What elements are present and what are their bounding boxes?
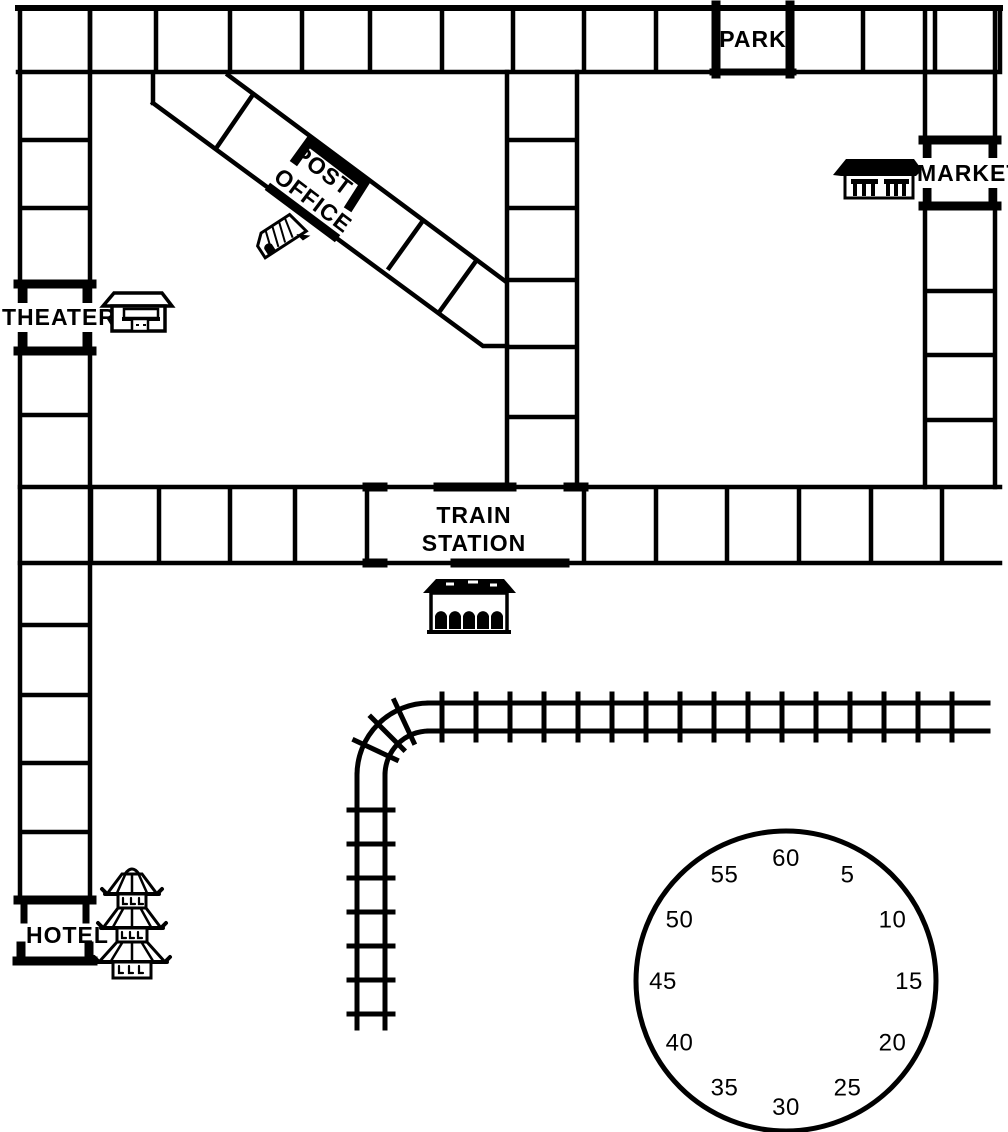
hotel-cell[interactable]: HOTEL (17, 900, 109, 961)
board-artwork: PARK THEATER MARKET HOTEL TRAIN S (0, 0, 1008, 1132)
train-station-label-line1: TRAIN (436, 502, 511, 528)
market-cell[interactable]: MARKET (915, 140, 1008, 206)
timer-number-60: 60 (772, 845, 800, 872)
timer-number-30: 30 (772, 1094, 800, 1121)
timer-number-35: 35 (711, 1075, 739, 1102)
timer-number-45: 45 (649, 968, 677, 995)
game-board-page: PARK THEATER MARKET HOTEL TRAIN S (0, 0, 1008, 1132)
station-building-icon (423, 579, 516, 632)
train-station-label-line2: STATION (422, 530, 527, 556)
market-label: MARKET (917, 160, 1008, 186)
right-column-track (925, 8, 995, 487)
timer-wheel[interactable]: 60 5 10 15 20 25 30 35 40 45 50 55 (636, 831, 936, 1131)
timer-number-55: 55 (711, 862, 739, 889)
hotel-label: HOTEL (26, 922, 109, 948)
board-grid (18, 8, 1000, 900)
train-station-cell[interactable]: TRAIN STATION (367, 487, 584, 563)
timer-number-40: 40 (666, 1030, 694, 1057)
timer-number-15: 15 (895, 968, 923, 995)
pagoda-icon (94, 869, 170, 978)
timer-number-20: 20 (879, 1030, 907, 1057)
theater-building-icon (103, 293, 172, 331)
theater-label: THEATER (2, 304, 116, 330)
mail-truck-icon (253, 211, 311, 263)
theater-cell[interactable]: THEATER (0, 284, 116, 351)
timer-wheel-face[interactable] (636, 831, 936, 1131)
park-cell[interactable]: PARK (713, 5, 793, 74)
timer-number-50: 50 (666, 907, 694, 934)
timer-number-10: 10 (879, 907, 907, 934)
timer-number-25: 25 (834, 1075, 862, 1102)
timer-number-5: 5 (841, 862, 855, 889)
left-column-track (20, 8, 90, 900)
middle-column-track (507, 72, 577, 487)
park-label: PARK (719, 26, 786, 52)
market-stall-icon (833, 159, 922, 198)
